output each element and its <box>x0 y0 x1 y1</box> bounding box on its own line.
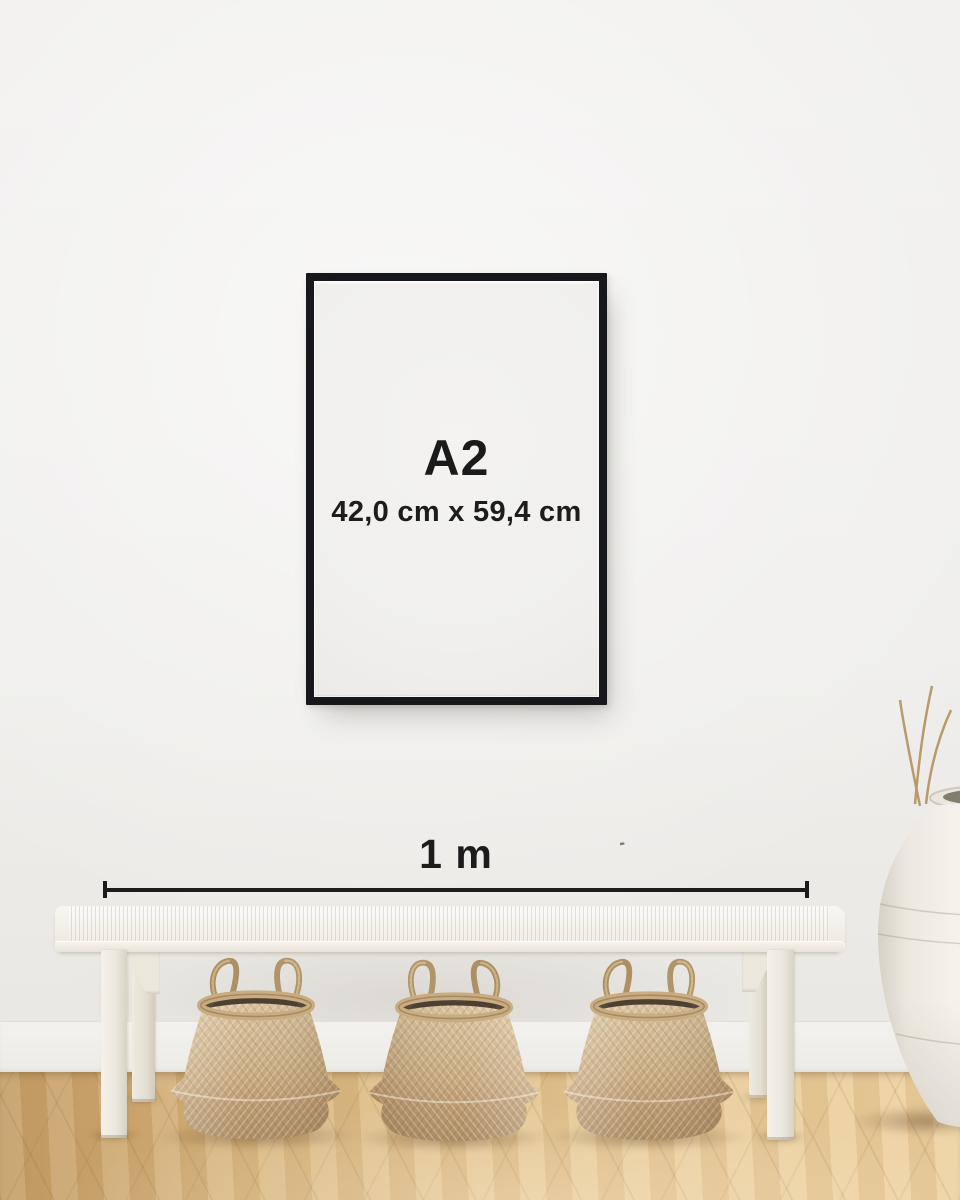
bench-seat-end <box>829 906 845 952</box>
seagrass-basket-1 <box>159 955 353 1141</box>
seagrass-basket-3 <box>552 956 746 1142</box>
bench-seat-end <box>55 906 69 952</box>
palm-plant <box>620 318 960 858</box>
palm-fronds-dried <box>620 318 960 858</box>
vase <box>866 782 960 1134</box>
poster-dimensions-label: 42,0 cm x 59,4 cm <box>331 498 581 527</box>
room-scene: A2 42,0 cm x 59,4 cm 1 m <box>0 0 960 1200</box>
palm-fronds-green <box>620 318 960 858</box>
bench-seat <box>55 906 845 952</box>
poster: A2 42,0 cm x 59,4 cm <box>314 281 599 697</box>
seagrass-basket-2 <box>357 957 551 1143</box>
poster-frame: A2 42,0 cm x 59,4 cm <box>306 273 607 705</box>
poster-size-label: A2 <box>424 433 490 483</box>
bench-leg-front-left <box>101 950 127 1138</box>
measurement-line <box>103 881 809 898</box>
bench-leg-front-right <box>767 950 794 1140</box>
